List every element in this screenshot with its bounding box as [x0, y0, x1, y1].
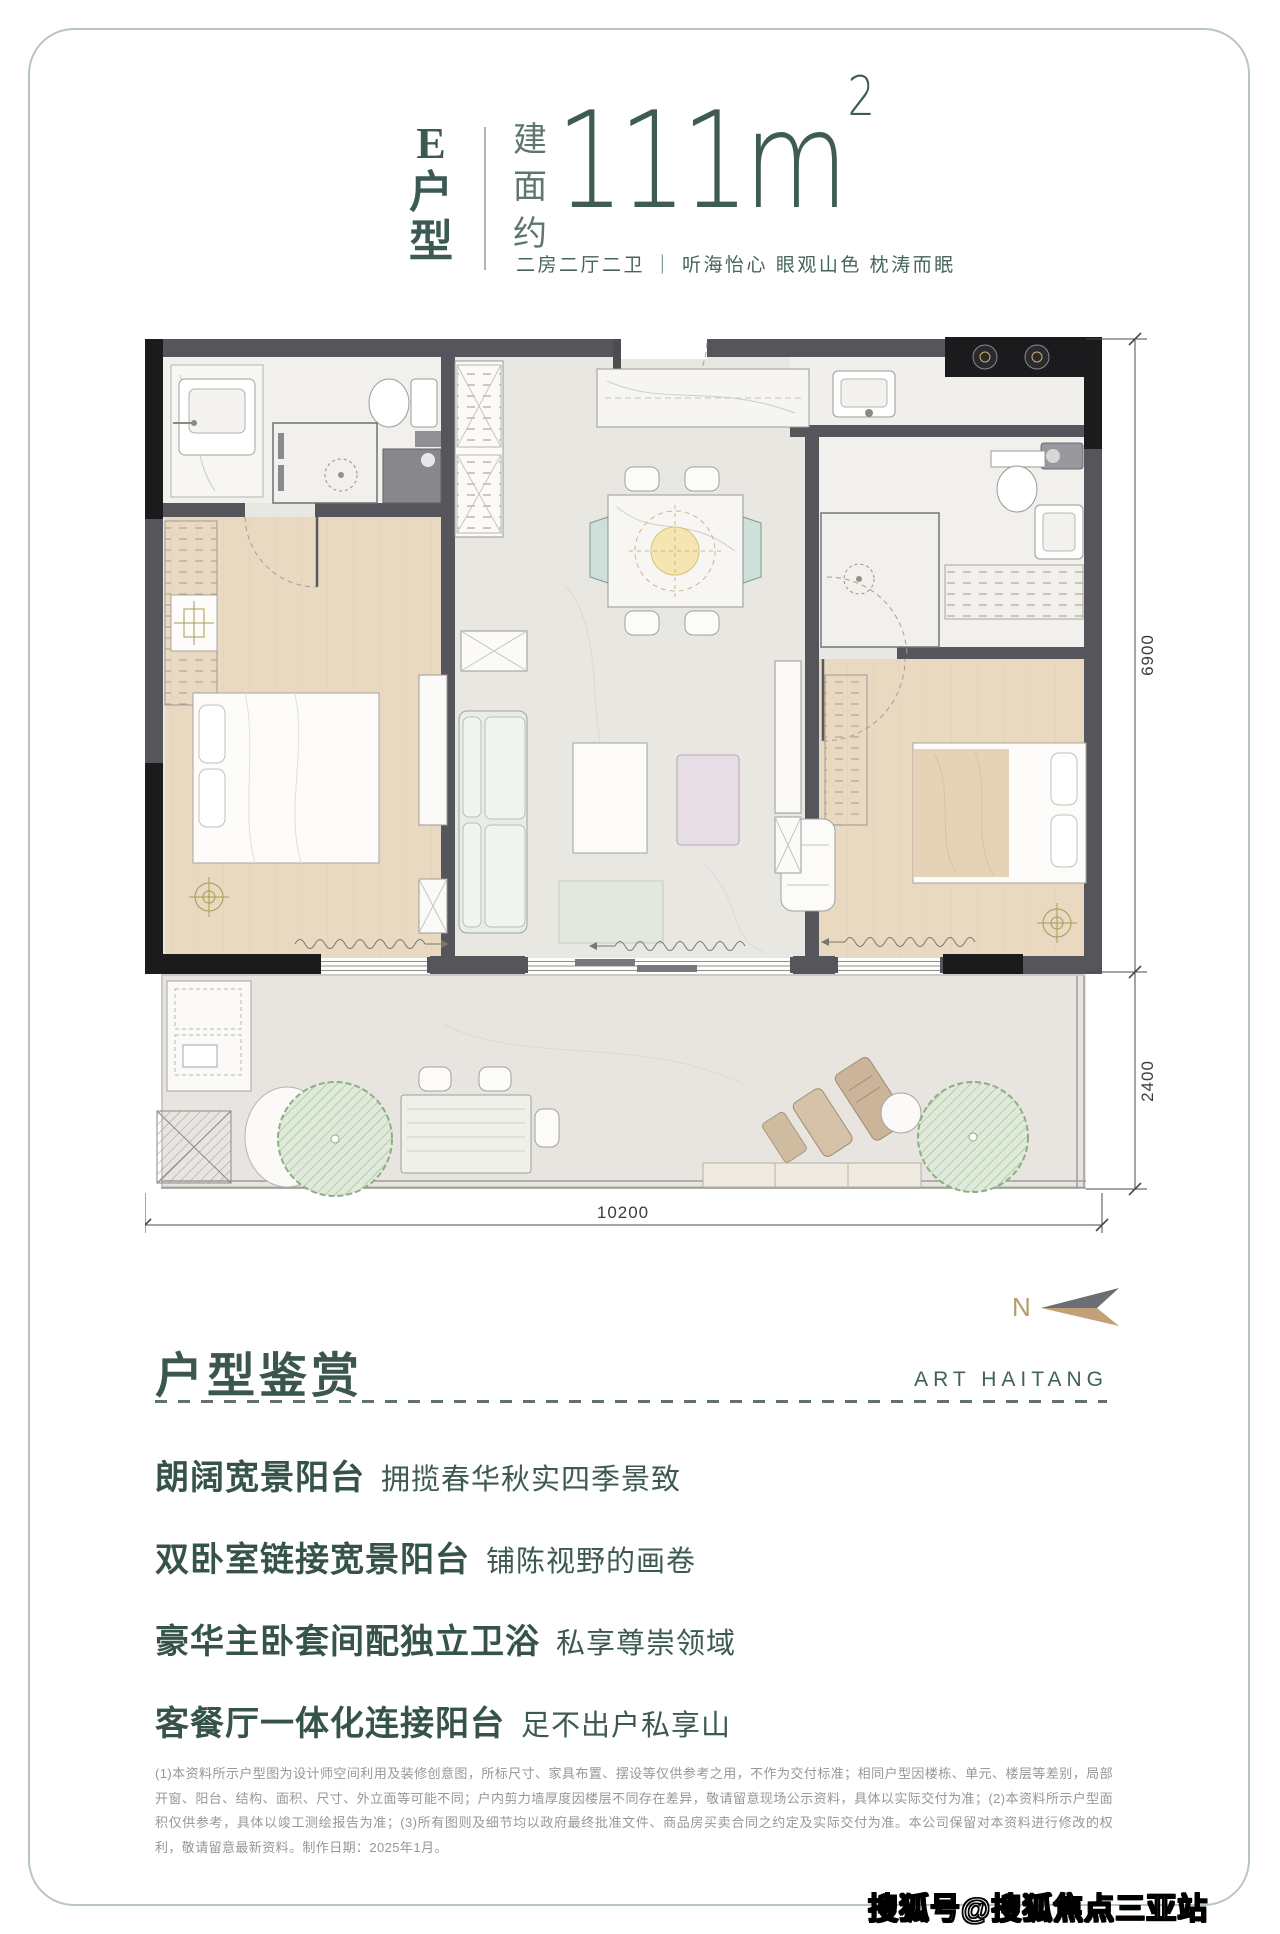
- unit-title-char: E: [406, 122, 456, 166]
- compass-n-label: N: [1012, 1292, 1031, 1323]
- feature-highlight: 豪华主卧套间配独立卫浴: [155, 1614, 540, 1663]
- area-prefix-char: 约: [512, 218, 548, 252]
- unit-title-char: 型: [406, 220, 456, 264]
- poster-page: E 户 型 建 面 约 111m 2 二房二厅二卫 ｜ 听海怡心 眼观山色 枕涛…: [0, 0, 1280, 1934]
- disclaimer-text: (1)本资料所示户型图为设计师空间利用及装修创意图，所标尺寸、家具布置、摆设等仅…: [155, 1762, 1113, 1861]
- area-value: 111m 2: [556, 94, 875, 228]
- north-arrow-icon: [1041, 1286, 1121, 1328]
- sofa: [459, 711, 527, 933]
- feature-item: 双卧室链接宽景阳台 铺陈视野的画卷: [155, 1532, 736, 1581]
- area-number: 111m: [556, 94, 843, 228]
- bath-cabinet: [383, 449, 441, 503]
- feature-item: 豪华主卧套间配独立卫浴 私享尊崇领域: [155, 1614, 736, 1663]
- area-superscript: 2: [847, 70, 874, 124]
- balcony-cabinet: [167, 981, 251, 1091]
- side-table: [677, 755, 739, 845]
- compass: N: [1012, 1286, 1121, 1328]
- dim-balcony-label: 2400: [1138, 1060, 1157, 1102]
- side-table: [171, 595, 217, 651]
- feature-highlight: 双卧室链接宽景阳台: [155, 1532, 470, 1581]
- dim-depth-label: 6900: [1138, 634, 1157, 676]
- round-table: [881, 1093, 921, 1133]
- rug: [559, 881, 663, 943]
- kitchen-sink: [833, 371, 895, 417]
- section-heading: 户型鉴赏: [155, 1336, 363, 1406]
- unit-title-char: 户: [406, 171, 456, 215]
- bed: [913, 743, 1086, 883]
- dim-width-label: 10200: [597, 1203, 649, 1222]
- cooktop: [945, 337, 1102, 377]
- tv-cabinet: [775, 661, 801, 873]
- header-divider: [484, 127, 486, 270]
- feature-desc: 铺陈视野的画卷: [486, 1538, 696, 1580]
- area-prefix-char: 建: [512, 124, 548, 158]
- washer: [1041, 443, 1083, 469]
- feature-highlight: 朗阔宽景阳台: [155, 1450, 365, 1499]
- feature-list: 朗阔宽景阳台 拥揽春华秋实四季景致 双卧室链接宽景阳台 铺陈视野的画卷 豪华主卧…: [155, 1450, 736, 1778]
- bench: [703, 1163, 921, 1187]
- unit-title: E 户 型: [406, 122, 456, 264]
- plant: [918, 1082, 1028, 1192]
- console: [461, 631, 527, 671]
- hall-closet: [455, 361, 503, 537]
- sink-basin: [189, 389, 245, 433]
- watermark-text: 搜狐号@搜狐焦点三亚站: [868, 1884, 1208, 1928]
- plant: [278, 1082, 392, 1196]
- area-prefix-char: 面: [512, 171, 548, 205]
- tagline: 二房二厅二卫 ｜ 听海怡心 眼观山色 枕涛而眠: [516, 250, 956, 277]
- brand-label: ART HAITANG: [880, 1368, 1108, 1392]
- coffee-table: [573, 743, 647, 853]
- wardrobe: [825, 675, 867, 825]
- dashed-divider: [155, 1400, 1107, 1403]
- feature-desc: 拥揽春华秋实四季景致: [381, 1456, 681, 1498]
- area-prefix: 建 面 约: [512, 124, 548, 252]
- feature-item: 客餐厅一体化连接阳台 足不出户私享山: [155, 1696, 736, 1745]
- kitchen-island: [597, 369, 809, 427]
- dressing-closet: [945, 565, 1083, 619]
- feature-desc: 私享尊崇领域: [556, 1620, 736, 1662]
- ac-platform: [157, 1111, 231, 1183]
- dresser: [419, 675, 447, 933]
- toilet-icon: [369, 379, 437, 427]
- vanity: [1035, 505, 1083, 559]
- feature-desc: 足不出户私享山: [521, 1702, 731, 1744]
- feature-highlight: 客餐厅一体化连接阳台: [155, 1696, 505, 1745]
- bed: [193, 693, 379, 863]
- feature-item: 朗阔宽景阳台 拥揽春华秋实四季景致: [155, 1450, 736, 1499]
- floor-plan: 6900 2400 10200: [145, 325, 1160, 1265]
